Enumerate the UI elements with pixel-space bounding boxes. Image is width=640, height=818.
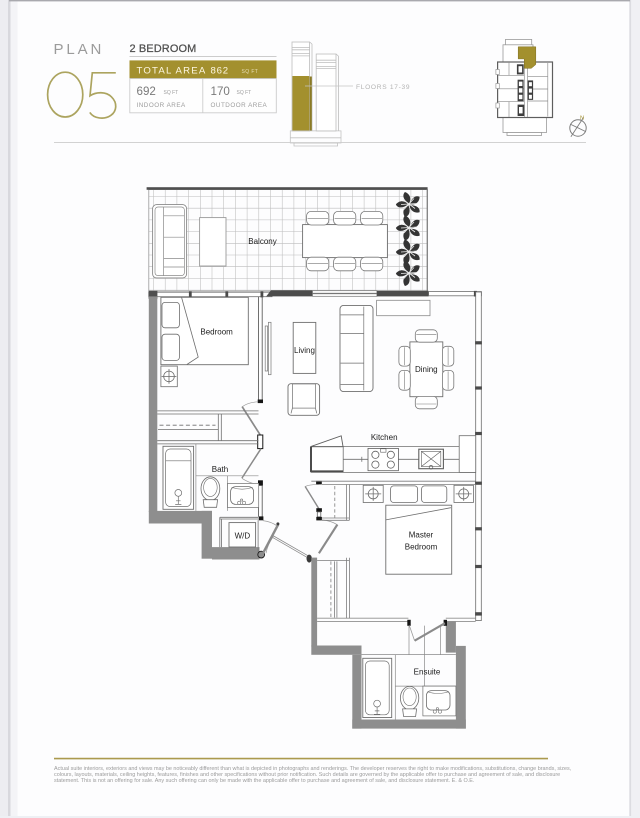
svg-text:SQ FT: SQ FT bbox=[237, 90, 252, 96]
svg-text:Master: Master bbox=[409, 531, 434, 540]
svg-text:Bedroom: Bedroom bbox=[200, 327, 233, 336]
svg-text:Dining: Dining bbox=[415, 365, 438, 374]
svg-text:INDOOR AREA: INDOOR AREA bbox=[137, 102, 187, 109]
svg-text:FLOORS 17-39: FLOORS 17-39 bbox=[356, 84, 410, 91]
svg-text:Ensuite: Ensuite bbox=[414, 668, 441, 677]
svg-text:SQ FT: SQ FT bbox=[164, 90, 179, 96]
svg-text:Balcony: Balcony bbox=[248, 237, 276, 246]
svg-text:Bath: Bath bbox=[212, 465, 228, 474]
svg-text:692: 692 bbox=[137, 85, 156, 98]
svg-text:statement. This is not an offe: statement. This is not an offering for s… bbox=[54, 778, 475, 784]
svg-text:PLAN: PLAN bbox=[54, 41, 105, 58]
svg-text:170: 170 bbox=[211, 85, 230, 98]
svg-text:TOTAL AREA: TOTAL AREA bbox=[137, 65, 207, 76]
svg-text:Actual suite interiors, exteri: Actual suite interiors, exteriors and vi… bbox=[54, 766, 572, 772]
svg-text:W/D: W/D bbox=[235, 532, 251, 541]
svg-text:2 BEDROOM: 2 BEDROOM bbox=[130, 43, 197, 55]
svg-text:Living: Living bbox=[294, 346, 315, 355]
svg-text:862: 862 bbox=[211, 65, 229, 76]
svg-text:colours, layouts, materials, c: colours, layouts, materials, ceiling hei… bbox=[54, 772, 560, 778]
svg-text:Kitchen: Kitchen bbox=[371, 433, 398, 442]
svg-text:SQ FT: SQ FT bbox=[242, 69, 259, 75]
svg-text:N: N bbox=[580, 116, 584, 122]
svg-text:OUTDOOR AREA: OUTDOOR AREA bbox=[211, 102, 268, 109]
svg-text:Bedroom: Bedroom bbox=[405, 543, 438, 552]
